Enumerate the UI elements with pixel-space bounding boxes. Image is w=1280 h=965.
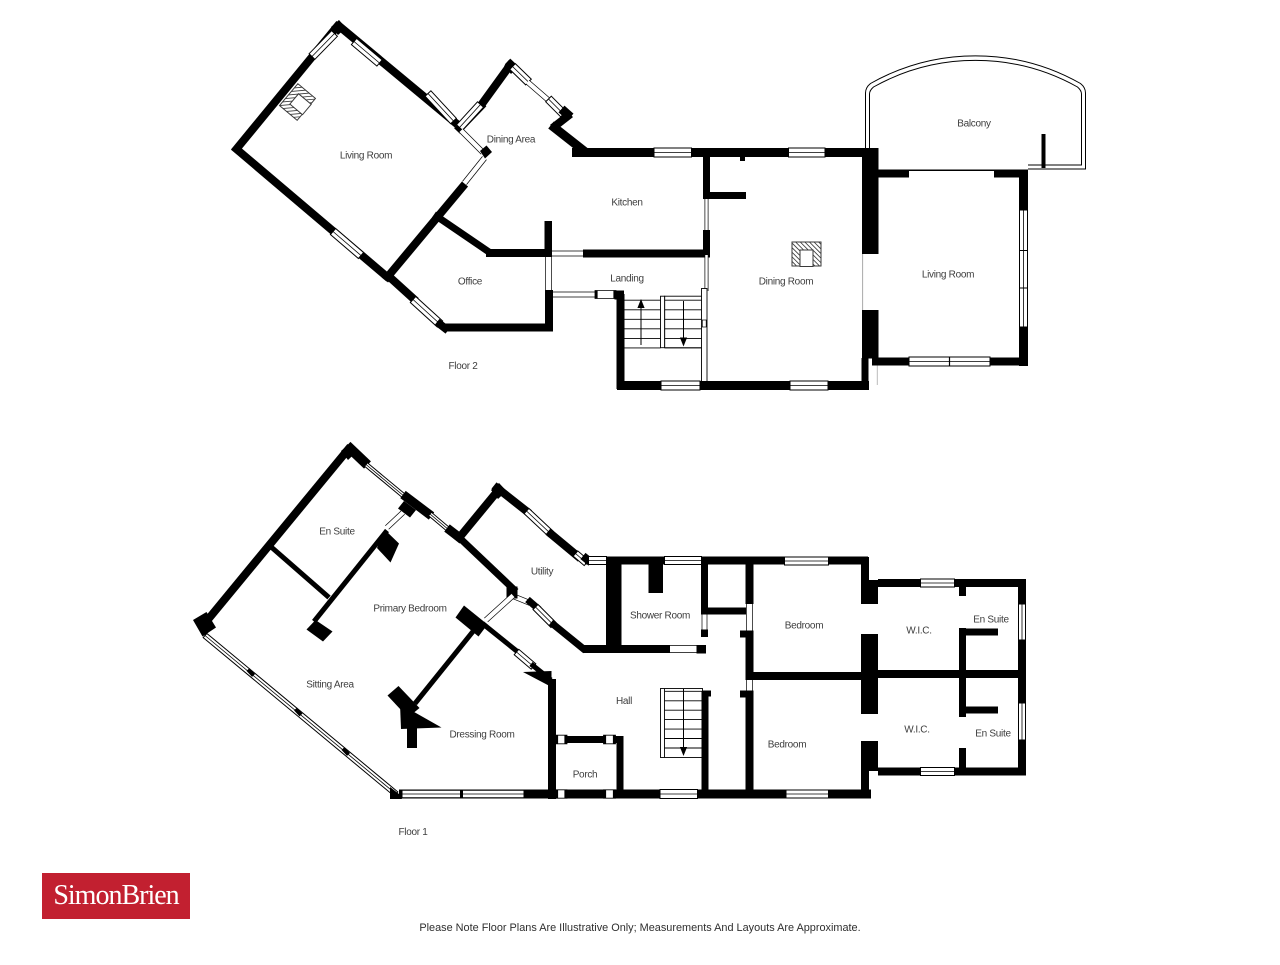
svg-text:Shower Room: Shower Room <box>630 611 690 622</box>
svg-text:Porch: Porch <box>573 770 598 781</box>
svg-text:Bedroom: Bedroom <box>785 621 823 632</box>
svg-text:Primary Bedroom: Primary Bedroom <box>373 604 446 615</box>
svg-text:Landing: Landing <box>610 274 644 285</box>
svg-text:Hall: Hall <box>616 696 632 707</box>
svg-text:Utility: Utility <box>531 567 554 578</box>
svg-text:En Suite: En Suite <box>973 615 1009 626</box>
svg-text:Living Room: Living Room <box>340 151 392 162</box>
svg-text:Kitchen: Kitchen <box>611 198 642 209</box>
svg-text:Floor 1: Floor 1 <box>398 827 428 838</box>
svg-text:Bedroom: Bedroom <box>768 740 806 751</box>
svg-text:Dressing Room: Dressing Room <box>449 730 514 741</box>
svg-text:W.I.C.: W.I.C. <box>904 725 929 736</box>
svg-text:Floor 2: Floor 2 <box>448 361 478 372</box>
svg-text:Dining Area: Dining Area <box>487 135 536 146</box>
svg-text:Dining Room: Dining Room <box>759 277 814 288</box>
svg-text:Balcony: Balcony <box>957 119 991 130</box>
svg-text:W.I.C.: W.I.C. <box>906 626 931 637</box>
svg-text:En Suite: En Suite <box>975 729 1011 740</box>
svg-text:Living Room: Living Room <box>922 270 974 281</box>
svg-text:En Suite: En Suite <box>319 527 355 538</box>
svg-text:Sitting Area: Sitting Area <box>306 680 354 691</box>
svg-text:Office: Office <box>458 277 483 288</box>
